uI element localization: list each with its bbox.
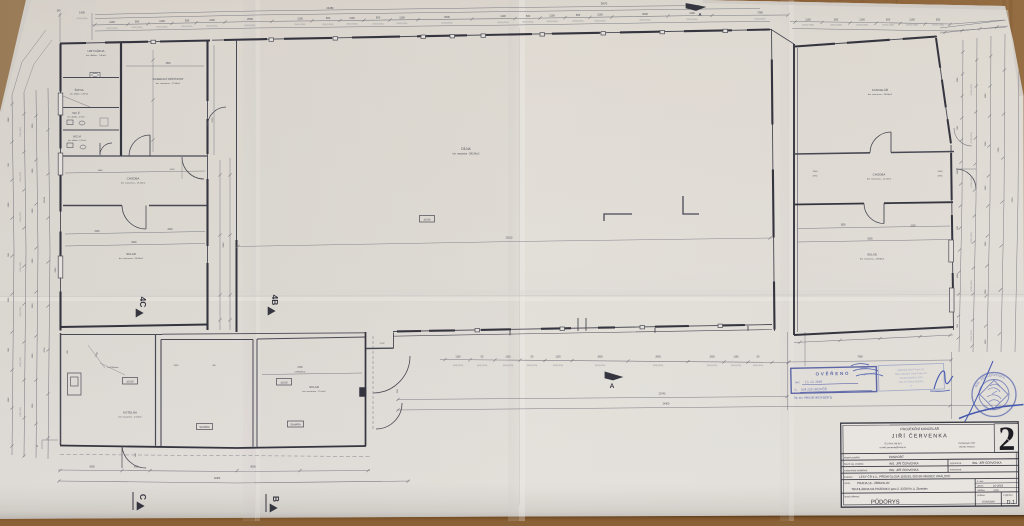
svg-text:1100: 1100 <box>505 356 511 359</box>
svg-text:SKLAD: SKLAD <box>126 252 137 256</box>
svg-text:1900: 1900 <box>840 225 846 227</box>
svg-text:500: 500 <box>326 16 331 20</box>
svg-text:2840: 2840 <box>55 267 57 273</box>
svg-text:hlavní ing. projektu:: hlavní ing. projektu: <box>844 463 864 466</box>
svg-text:vypracoval:: vypracoval: <box>950 462 962 465</box>
svg-text:(1500) (350): (1500) (350) <box>882 25 894 27</box>
svg-text:2600: 2600 <box>655 356 661 359</box>
svg-text:1100: 1100 <box>859 18 865 22</box>
svg-text:STAVEBNÍ: STAVEBNÍ <box>982 499 995 503</box>
svg-text:(1500) (350): (1500) (350) <box>906 25 918 27</box>
svg-text:SKLAD: SKLAD <box>867 253 878 257</box>
svg-text:(1500) (350): (1500) (350) <box>856 25 868 27</box>
svg-text:3100: 3100 <box>94 231 100 233</box>
svg-text:(500) (350): (500) (350) <box>295 24 306 26</box>
svg-text:(500) (350): (500) (350) <box>323 24 334 26</box>
svg-text:7280: 7280 <box>998 147 1000 153</box>
svg-text:(500) (350): (500) (350) <box>595 365 606 367</box>
svg-text:1100: 1100 <box>805 18 811 22</box>
svg-text:místo:: místo: <box>844 482 851 485</box>
svg-text:500: 500 <box>376 16 381 20</box>
svg-text:B: B <box>271 496 281 502</box>
svg-text:ING. JIŘÍ ČERVENKA: ING. JIŘÍ ČERVENKA <box>889 467 919 472</box>
svg-text:1100: 1100 <box>500 14 506 18</box>
svg-text:TEL/FAX 248 914: TEL/FAX 248 914 <box>884 442 902 445</box>
svg-text:500: 500 <box>834 18 839 22</box>
svg-text:(500) (350): (500) (350) <box>20 127 22 137</box>
svg-text:profese:: profese: <box>977 494 985 497</box>
svg-text:(500) (350): (500) (350) <box>595 20 606 22</box>
svg-text:(500) (350): (500) (350) <box>498 22 509 24</box>
svg-text:kat. dlažba - 7,40m2: kat. dlažba - 7,40m2 <box>86 54 107 57</box>
svg-text:±0,00: ±0,00 <box>424 218 431 222</box>
svg-text:Za Opusem 1421: Za Opusem 1421 <box>958 443 976 445</box>
svg-text:ING. JIŘÍ ČERVENKA: ING. JIŘÍ ČERVENKA <box>972 460 1002 465</box>
svg-text:WC Ž: WC Ž <box>72 110 79 115</box>
svg-text:2000: 2000 <box>167 229 173 231</box>
svg-text:(500) (350): (500) (350) <box>477 365 488 367</box>
svg-text:bet. mazanina - 12,12m2: bet. mazanina - 12,12m2 <box>867 178 892 181</box>
svg-text:500: 500 <box>576 13 581 17</box>
svg-text:ker. mazanina - 17,38m2: ker. mazanina - 17,38m2 <box>156 82 181 85</box>
svg-text:23740: 23740 <box>659 393 666 396</box>
svg-text:1100: 1100 <box>159 19 165 23</box>
svg-text:DÍLNA: DÍLNA <box>461 147 471 151</box>
svg-text:7380: 7380 <box>757 11 763 15</box>
svg-text:CHODBA: CHODBA <box>873 173 886 177</box>
svg-text:1500: 1500 <box>709 356 715 359</box>
svg-text:3870: 3870 <box>601 2 608 6</box>
svg-text:(500) (350): (500) (350) <box>132 27 143 29</box>
svg-text:C: C <box>138 494 148 500</box>
svg-text:800: 800 <box>134 466 139 469</box>
svg-text:(500) (350): (500) (350) <box>347 24 358 26</box>
svg-text:1100: 1100 <box>689 11 695 15</box>
svg-text:ŠATNA: ŠATNA <box>74 87 83 92</box>
svg-text:ZASEDACÍ MÍSTNOST: ZASEDACÍ MÍSTNOST <box>152 77 184 81</box>
svg-text:(500) (350): (500) (350) <box>653 365 664 367</box>
svg-text:(500) (350): (500) (350) <box>640 20 651 22</box>
svg-text:10-2018: 10-2018 <box>993 484 1003 488</box>
svg-text:±0,00: ±0,00 <box>127 380 134 384</box>
svg-text:CHODBA: CHODBA <box>127 177 140 181</box>
svg-text:(1500) (350): (1500) (350) <box>971 176 973 187</box>
svg-text:5980: 5980 <box>223 242 225 248</box>
svg-text:24380: 24380 <box>326 6 334 10</box>
svg-text:(500) (350): (500) (350) <box>20 212 22 222</box>
svg-text:2550: 2550 <box>212 117 214 123</box>
svg-text:7580: 7580 <box>857 356 863 359</box>
svg-text:1100: 1100 <box>455 356 461 359</box>
svg-text:(500) (350): (500) (350) <box>527 365 538 367</box>
svg-text:1000: 1000 <box>813 171 819 173</box>
svg-text:datum:: datum: <box>977 484 984 487</box>
svg-text:(500) (350): (500) (350) <box>523 22 534 24</box>
svg-text:(500) (350): (500) (350) <box>731 365 742 367</box>
svg-text:SKLAD: SKLAD <box>309 385 320 389</box>
svg-text:500: 500 <box>135 20 140 24</box>
svg-text:(1500) (350): (1500) (350) <box>802 25 814 27</box>
svg-text:500: 500 <box>936 18 941 22</box>
svg-text:2500: 2500 <box>642 12 648 16</box>
svg-text:(500) (350): (500) (350) <box>397 23 408 25</box>
svg-text:obsah výkresu:: obsah výkresu: <box>844 495 860 498</box>
svg-text:SAHARA: SAHARA <box>199 426 210 429</box>
svg-text:bet. mazanina - 28,86m2: bet. mazanina - 28,86m2 <box>119 257 144 260</box>
svg-text:13910: 13910 <box>44 196 46 203</box>
svg-text:A: A <box>610 383 615 390</box>
svg-text:(500) (350): (500) (350) <box>503 365 514 367</box>
svg-text:(500) (350): (500) (350) <box>20 407 22 417</box>
svg-text:(1500) (350): (1500) (350) <box>971 232 973 243</box>
svg-text:(1500) (350): (1500) (350) <box>971 84 973 95</box>
svg-text:1100: 1100 <box>109 20 115 24</box>
svg-text:PASPORT: PASPORT <box>889 455 904 459</box>
svg-text:(500) (350): (500) (350) <box>20 172 22 182</box>
svg-text:500: 500 <box>185 19 190 23</box>
svg-text:(500) (350): (500) (350) <box>453 365 464 367</box>
svg-text:bet. mazanina - 280,96m2: bet. mazanina - 280,96m2 <box>453 153 480 156</box>
svg-text:7600: 7600 <box>1012 197 1014 203</box>
svg-text:(1500) (350): (1500) (350) <box>932 25 944 27</box>
svg-text:245: 245 <box>57 10 62 13</box>
svg-text:21980(910): 21980(910) <box>295 372 306 374</box>
svg-text:4C: 4C <box>138 297 148 308</box>
svg-text:kontroloval:: kontroloval: <box>950 468 962 471</box>
svg-text:ker. dlažba - 2,9m2: ker. dlažba - 2,9m2 <box>67 117 85 119</box>
svg-text:1100: 1100 <box>349 16 355 20</box>
svg-text:SAHARA: SAHARA <box>290 424 301 427</box>
svg-text:1100: 1100 <box>549 13 555 17</box>
svg-text:(500) (350): (500) (350) <box>20 357 22 367</box>
svg-text:měřítko:: měřítko: <box>977 489 985 492</box>
svg-text:(500) (350): (500) (350) <box>373 23 384 25</box>
svg-text:3600: 3600 <box>89 466 95 469</box>
svg-text:ING. JIŘÍ ČERVENKA: ING. JIŘÍ ČERVENKA <box>889 460 919 465</box>
svg-text:1000: 1000 <box>938 171 944 173</box>
svg-text:500: 500 <box>886 18 891 22</box>
svg-text:(500) (350): (500) (350) <box>687 19 698 21</box>
svg-text:PŮDORYS: PŮDORYS <box>871 499 900 506</box>
svg-text:(500) (350): (500) (350) <box>547 21 558 23</box>
svg-text:23610: 23610 <box>506 237 513 240</box>
svg-text:bet. mazanina - 21,0m2: bet. mazanina - 21,0m2 <box>303 390 327 393</box>
svg-text:TRUHLÁRNA NA POZEMKU parc.č. 3: TRUHLÁRNA NA POZEMKU parc.č. 3234/9 k.ú.… <box>851 487 928 492</box>
svg-text:(500) (350): (500) (350) <box>207 26 218 28</box>
svg-text:k. sek.:: k. sek.: <box>977 481 984 483</box>
svg-text:ker. dlažba - 1,95m2: ker. dlažba - 1,95m2 <box>70 94 89 96</box>
svg-text:1100: 1100 <box>909 18 915 22</box>
svg-text:±0,00: ±0,00 <box>281 381 288 385</box>
svg-text:(1500) (350): (1500) (350) <box>830 25 842 27</box>
svg-text:156 00, Praha 5: 156 00, Praha 5 <box>959 445 975 448</box>
svg-text:(970): (970) <box>813 176 818 178</box>
svg-text:ker. dlažba - 1,95m2: ker. dlažba - 1,95m2 <box>68 140 87 142</box>
svg-text:DNE: DNE <box>795 382 800 384</box>
svg-text:2500: 2500 <box>444 15 450 19</box>
svg-text:4130: 4130 <box>170 169 176 171</box>
svg-text:(500) (350): (500) (350) <box>573 21 584 23</box>
svg-text:(500) (350): (500) (350) <box>442 23 453 25</box>
svg-text:1400: 1400 <box>79 11 85 15</box>
svg-text:(500) (350): (500) (350) <box>245 25 256 27</box>
svg-text:KANCELÁŘ: KANCELÁŘ <box>872 87 889 92</box>
svg-text:9600: 9600 <box>250 466 256 469</box>
svg-text:(500) (350): (500) (350) <box>753 365 764 367</box>
svg-text:500: 500 <box>526 14 531 18</box>
svg-text:(500) (350): (500) (350) <box>755 18 766 20</box>
svg-text:1100: 1100 <box>597 13 603 17</box>
svg-text:- 8 -: - 8 - <box>909 385 913 387</box>
svg-text:bet. mazanina - 28,86m2: bet. mazanina - 28,86m2 <box>860 258 885 261</box>
svg-text:bet. mazanina - 13,10m2: bet. mazanina - 13,10m2 <box>121 182 146 185</box>
svg-text:024 223/18/OVĚŘ: 024 223/18/OVĚŘ <box>801 386 827 392</box>
svg-text:1800: 1800 <box>597 356 603 359</box>
svg-text:1100: 1100 <box>297 17 303 21</box>
svg-text:4710: 4710 <box>44 347 46 353</box>
svg-text:(500) (350): (500) (350) <box>707 365 718 367</box>
svg-text:1100: 1100 <box>555 356 561 359</box>
svg-text:24300: 24300 <box>663 403 670 406</box>
svg-text:(500) (350): (500) (350) <box>107 28 118 30</box>
svg-text:1,132: 1,132 <box>379 343 385 345</box>
svg-text:6000: 6000 <box>867 239 873 241</box>
svg-text:13. 12. 2018: 13. 12. 2018 <box>805 380 822 384</box>
svg-text:Č.j.: Č.j. <box>794 388 798 391</box>
svg-text:Sp. zn.: 066128/18/OVDŽP/Tj: Sp. zn.: 066128/18/OVDŽP/Tj <box>794 395 832 400</box>
svg-text:investor:: investor: <box>844 476 853 479</box>
svg-text:(500) (350): (500) (350) <box>157 27 168 29</box>
svg-text:KOTELNA: KOTELNA <box>123 411 137 415</box>
svg-text:D.1: D.1 <box>1007 500 1015 506</box>
svg-text:č.výkresu:: č.výkresu: <box>1003 494 1013 497</box>
svg-text:WC M: WC M <box>73 135 81 139</box>
svg-text:(970): (970) <box>938 176 943 178</box>
svg-text:1100: 1100 <box>733 356 739 359</box>
svg-text:UMYVÁRNA: UMYVÁRNA <box>87 49 104 53</box>
svg-text:(500) (350): (500) (350) <box>182 26 193 28</box>
svg-text:6000: 6000 <box>131 242 137 244</box>
svg-text:PROJEKČNÍ KANCELÁŘ: PROJEKČNÍ KANCELÁŘ <box>900 426 939 431</box>
svg-text:stupeň projektu:: stupeň projektu: <box>844 456 861 459</box>
svg-text:e-mail: jcervenka@volny.cz: e-mail: jcervenka@volny.cz <box>880 446 907 449</box>
svg-text:(500) (350): (500) (350) <box>20 262 22 272</box>
svg-text:bet. mazanina - 13,3m2: bet. mazanina - 13,3m2 <box>119 416 143 419</box>
svg-text:OVĚŘENO: OVĚŘENO <box>816 371 851 377</box>
svg-text:4B: 4B <box>270 295 280 306</box>
svg-text:(500) (350): (500) (350) <box>77 18 88 20</box>
svg-text:(1500) (350): (1500) (350) <box>971 132 973 143</box>
svg-text:bet. mazanina - 28,86m2: bet. mazanina - 28,86m2 <box>868 93 893 96</box>
svg-text:11980: 11980 <box>214 477 221 480</box>
svg-text:PRAHA 16 - ZBRASLAV: PRAHA 16 - ZBRASLAV <box>857 481 889 485</box>
svg-text:LESY ČR k.ú., PŘEMYSLOVA 1106/: LESY ČR k.ú., PŘEMYSLOVA 1106/19, 500 08… <box>859 473 950 479</box>
svg-text:(500) (350): (500) (350) <box>20 307 22 317</box>
svg-text:zodpovědný projektant:: zodpovědný projektant: <box>844 469 868 472</box>
svg-text:1485: 1485 <box>98 170 104 172</box>
svg-text:1100: 1100 <box>209 18 215 22</box>
svg-text:2535: 2535 <box>174 365 180 367</box>
svg-text:(500) (350): (500) (350) <box>553 365 564 367</box>
svg-text:2500: 2500 <box>247 17 253 21</box>
svg-text:1:50: 1:50 <box>993 488 999 492</box>
svg-text:2700: 2700 <box>297 367 303 369</box>
svg-text:3500: 3500 <box>165 63 171 65</box>
svg-text:1100: 1100 <box>399 15 405 19</box>
svg-text:(1500) (350): (1500) (350) <box>971 280 973 291</box>
svg-text:(1500) (350): (1500) (350) <box>971 330 973 341</box>
